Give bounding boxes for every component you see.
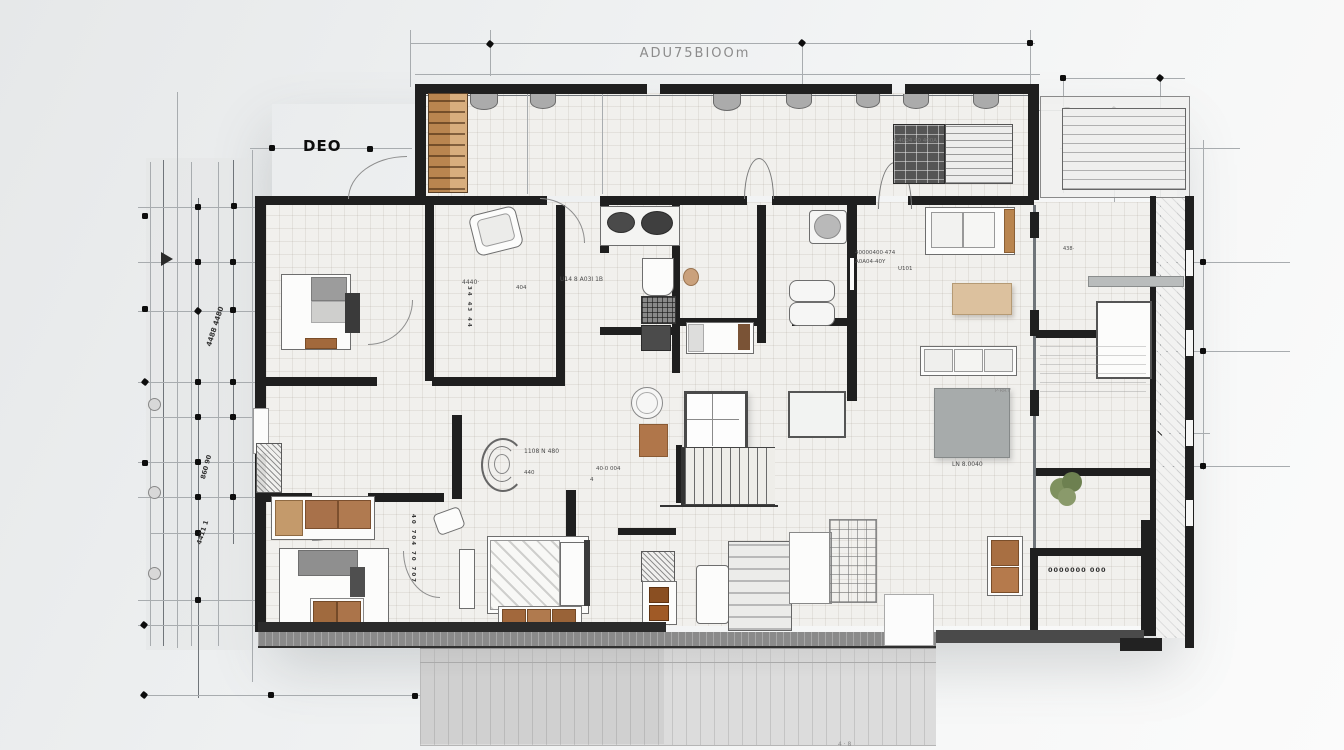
closet-louver-unit (945, 124, 1013, 184)
note-text: 4·4004 40 400A (893, 138, 937, 144)
dim-line-v (490, 30, 491, 76)
wall-segment (772, 196, 876, 205)
stove-burner (649, 605, 669, 621)
dim-dot (230, 494, 236, 500)
dim-dot (1156, 74, 1164, 82)
round-table-inner (636, 392, 658, 414)
note-text: 40000400·474 (855, 250, 895, 256)
dim-dot (140, 691, 148, 699)
dim-line-h (150, 417, 255, 418)
wall-sconce (856, 94, 880, 108)
dining-table-gray (934, 388, 1010, 458)
wall-sconce (713, 94, 741, 111)
dim-dot (142, 213, 148, 219)
bottom-band-gray (258, 632, 936, 646)
bottom-band-right (936, 630, 1144, 643)
grid-line-v (191, 162, 192, 646)
stove-burner (649, 587, 669, 603)
dim-dot (1200, 348, 1206, 354)
bath-pillow (789, 302, 835, 326)
sofa-lower-cushion (954, 349, 983, 372)
wall-segment (1032, 548, 1144, 556)
shower-column (642, 258, 674, 296)
wall-segment (1036, 468, 1150, 476)
axis-label-deo: DEO (303, 137, 341, 155)
note-text: 4 (590, 477, 594, 483)
dim-line-h (1063, 78, 1185, 79)
bed-1-blanket (311, 301, 347, 323)
sink-basin (641, 211, 673, 235)
kitchen-island (789, 532, 832, 604)
white-panel (788, 391, 846, 438)
grid-line-v (177, 92, 178, 648)
wall-stub (1030, 390, 1039, 416)
survey-circle (148, 567, 161, 580)
dim-line-v (1203, 140, 1204, 470)
triangle-marker (161, 252, 173, 266)
wall-shelf (1088, 276, 1184, 287)
wall-window-slit (1186, 330, 1193, 356)
wall-segment (452, 415, 462, 499)
grid-line-v (218, 162, 219, 646)
dim-dot (412, 693, 418, 699)
wall-segment (425, 205, 434, 381)
wall-sconce (530, 94, 556, 109)
closet-grid-unit (893, 124, 945, 184)
dim-dot (1027, 40, 1033, 46)
wall-segment (660, 84, 892, 94)
corridor-partition (602, 94, 603, 194)
wall-segment (618, 528, 676, 535)
wall-window-slit (850, 258, 854, 290)
wall-window-slit (1186, 500, 1193, 526)
sofa-top-wood-arm (1004, 209, 1015, 253)
wall-segment (908, 196, 1034, 205)
dim-dot (367, 146, 373, 152)
corridor-partition (527, 94, 528, 194)
dim-dot (268, 692, 274, 698)
sofa-bl-cushion (338, 500, 371, 529)
toilet-bowl (814, 214, 841, 239)
daybed-pillow (688, 324, 704, 352)
dim-dot (230, 307, 236, 313)
note-text: P·RR F (995, 388, 1011, 394)
note-text: LN 8.0040 (952, 461, 983, 468)
wall-sconce (470, 94, 498, 110)
glyph-column: 40 704 70 707 (410, 514, 416, 584)
wall-line (1033, 205, 1036, 550)
right-balcony-floor (1156, 198, 1186, 638)
dim-dot (195, 379, 201, 385)
dim-dot (1200, 463, 1206, 469)
dim-line-v (1030, 30, 1031, 87)
deck-stair-grill (829, 519, 877, 603)
nightstand-brown (639, 424, 668, 457)
dim-dot (195, 494, 201, 500)
dim-dot (195, 597, 201, 603)
stairs (681, 447, 775, 505)
grid-line-v (163, 160, 164, 646)
floor-plan-canvas: ADU75BIOOm DEO 4488 4480 860 9 (0, 0, 1344, 750)
wardrobe-dark (345, 293, 360, 333)
spiral-fixture-inner (494, 454, 510, 474)
dim-dot (142, 306, 148, 312)
decor-stone (683, 268, 699, 286)
stair-railing (660, 505, 778, 507)
wall-segment (847, 205, 857, 401)
armchair-cushion-brown (991, 540, 1019, 566)
wall-stub (1030, 212, 1039, 238)
dim-dot (231, 203, 237, 209)
bottom-wall-dark (258, 622, 666, 632)
room-label-blocky: 0000000 000 (1048, 566, 1107, 574)
note-text: 40·0 004 (596, 466, 621, 472)
bed-2-headboard (298, 550, 358, 576)
note-text: U14 8 A03I 1B (560, 276, 603, 283)
note-text: 4 · 8 (838, 741, 851, 748)
kitchen-hatch-box (641, 551, 675, 582)
wall-sconce (973, 94, 999, 109)
step-dark-br (1120, 638, 1162, 651)
grid-line-v (198, 198, 199, 698)
glyph-column: 34 43 44 (466, 286, 472, 329)
note-text: 4440· (462, 279, 479, 286)
step-white (884, 594, 934, 646)
dim-line-h (415, 74, 1040, 75)
sofa-top-cushion (931, 212, 963, 248)
bed-3-headboard (560, 542, 586, 606)
dim-dot (195, 204, 201, 210)
bath-cabinet-dark (641, 325, 671, 351)
wall-segment (1030, 548, 1038, 632)
note-text: 1108 N 480 (524, 448, 559, 455)
wall-segment (905, 84, 1039, 94)
wall-segment (1028, 84, 1039, 200)
note-text: U101 (898, 266, 913, 272)
wall-segment (415, 84, 426, 202)
dim-dot (486, 40, 494, 48)
dim-dot (230, 259, 236, 265)
daybed-wood-end (738, 324, 750, 350)
wall-window-slit (1186, 250, 1193, 276)
note-text: 438· (1063, 246, 1074, 252)
sofa-lower-cushion (984, 349, 1013, 372)
armchair-cushion-brown (991, 567, 1019, 593)
top-right-louver-closet (1062, 108, 1186, 190)
wall-sconce (903, 94, 929, 109)
wall-segment (1141, 520, 1152, 636)
wall-sconce (786, 94, 812, 109)
sofa-top-cushion (963, 212, 995, 248)
dim-dot (1200, 259, 1206, 265)
dim-dot (230, 414, 236, 420)
wall-window-slit (1186, 420, 1193, 446)
wall-segment (368, 493, 444, 502)
door-jamb-column (459, 549, 475, 609)
plan-title: ADU75BIOOm (600, 46, 790, 61)
bath-pillow (789, 280, 835, 302)
sofa-lower-cushion (924, 349, 953, 372)
closet-mid-right (1040, 338, 1146, 392)
dim-dot (142, 460, 148, 466)
sink-basin (607, 212, 635, 233)
tv-unit-dark (350, 567, 365, 597)
grid-line-v (233, 160, 234, 544)
dim-line-h (138, 625, 256, 626)
survey-circle (148, 398, 161, 411)
dim-line-v (802, 43, 803, 87)
skylight-mullion-v (712, 394, 713, 446)
dim-line-v (410, 30, 411, 87)
note-text: 404 (516, 285, 527, 291)
bed-3-duvet-diagonal (490, 540, 560, 610)
dim-dot (195, 459, 201, 465)
shower-grate (641, 296, 676, 324)
bed-1-pillow (311, 277, 347, 301)
sofa-bl-wood (275, 500, 303, 536)
coffee-table-tan (952, 283, 1012, 315)
bed-3-dark-edge (584, 540, 590, 606)
wall-segment (432, 377, 565, 386)
dim-dot (269, 145, 275, 151)
kitchen-cabinet-run (728, 541, 792, 631)
dim-line-h (410, 43, 1035, 44)
note-text: A0A04-40Y (855, 259, 885, 265)
dim-dot (1060, 75, 1066, 81)
sofa-bl-cushion (305, 500, 338, 529)
ladder-rungs (429, 94, 465, 190)
note-text: 440 (524, 470, 535, 476)
skylight-window (684, 391, 748, 455)
fridge (696, 565, 729, 624)
dim-dot (195, 414, 201, 420)
plant-blob (1058, 488, 1076, 506)
bed-1-footboard (305, 338, 337, 349)
closet-hatch (256, 443, 282, 493)
dim-dot (230, 379, 236, 385)
wall-segment (600, 196, 747, 205)
dim-dot (195, 259, 201, 265)
dim-dot (798, 39, 806, 47)
wall-segment (255, 377, 377, 386)
survey-circle (148, 486, 161, 499)
skylight-mullion-h (687, 419, 739, 420)
terrace-line (420, 662, 936, 663)
